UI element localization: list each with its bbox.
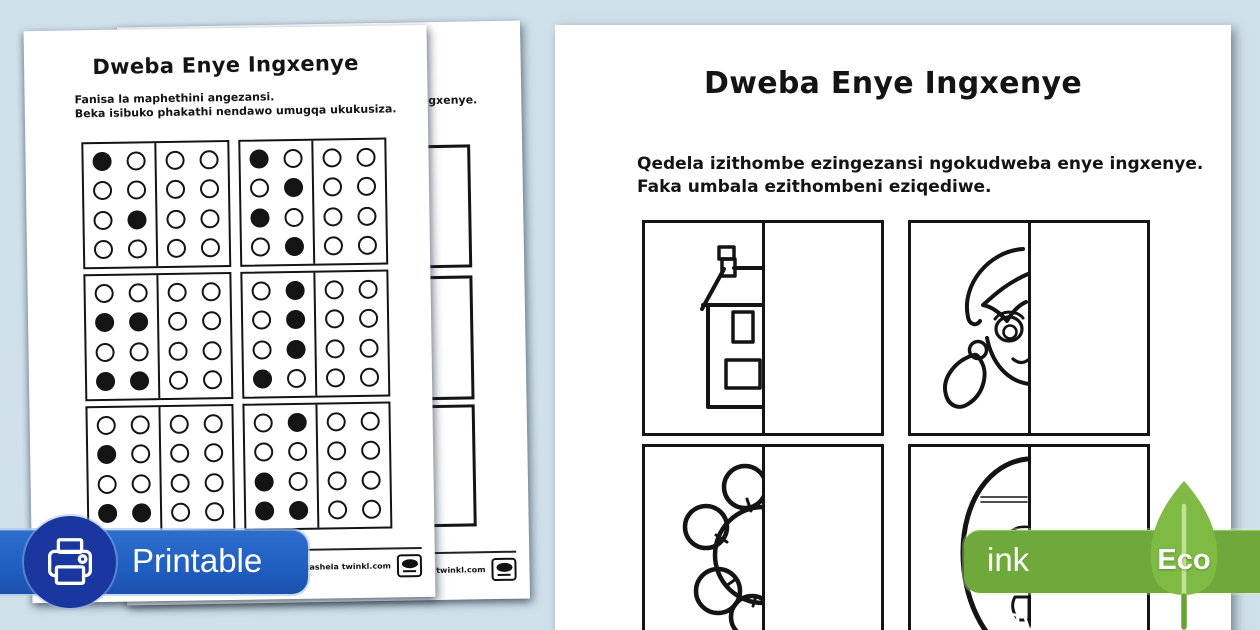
empty-dot	[199, 150, 218, 169]
empty-dot	[361, 441, 380, 460]
pattern-grid	[240, 269, 390, 398]
empty-dot	[168, 312, 187, 331]
filled-dot	[129, 313, 148, 332]
mirror-line	[762, 223, 765, 433]
empty-dot	[93, 181, 112, 200]
empty-dot	[360, 368, 379, 387]
printer-icon-circle	[24, 516, 116, 608]
empty-dot	[359, 309, 378, 328]
empty-dot	[128, 283, 147, 302]
empty-dot	[169, 341, 188, 360]
empty-dot	[171, 503, 190, 522]
empty-dot	[327, 412, 346, 431]
filled-dot	[93, 152, 112, 171]
filled-dot	[285, 237, 304, 256]
filled-dot	[286, 310, 305, 329]
empty-dot	[251, 237, 270, 256]
printable-badge-label: Printable	[132, 530, 262, 594]
pattern-grid-area	[81, 138, 392, 534]
empty-dot	[129, 342, 148, 361]
pattern-grid	[242, 401, 392, 530]
empty-dot	[170, 444, 189, 463]
pattern-grid-right-half	[313, 272, 388, 396]
filled-dot	[285, 281, 304, 300]
pattern-grid-left-half	[244, 405, 317, 529]
empty-dot	[202, 341, 221, 360]
empty-dot	[204, 443, 223, 462]
girl-half-picture	[908, 220, 1150, 436]
empty-dot	[253, 340, 272, 359]
ink-saving-badge-label: ink saving	[987, 530, 1082, 593]
filled-dot	[130, 371, 149, 390]
filled-dot	[255, 472, 274, 491]
eco-badge-label: Eco	[1144, 544, 1224, 577]
empty-dot	[326, 339, 345, 358]
empty-dot	[327, 442, 346, 461]
empty-dot	[288, 442, 307, 461]
empty-dot	[96, 342, 115, 361]
dot-pattern-worksheet-page: Dweba Enye Ingxenye Fanisa la maphethini…	[24, 25, 436, 603]
empty-dot	[126, 151, 145, 170]
filled-dot	[132, 503, 151, 522]
empty-dot	[201, 282, 220, 301]
empty-dot	[357, 206, 376, 225]
empty-dot	[203, 414, 222, 433]
mirror-line	[1028, 223, 1031, 433]
empty-dot	[166, 180, 185, 199]
filled-dot	[250, 149, 269, 168]
empty-dot	[201, 238, 220, 257]
empty-dot	[324, 207, 343, 226]
empty-dot	[94, 240, 113, 259]
twinkl-logo-stamp	[491, 558, 516, 581]
filled-dot	[287, 413, 306, 432]
pattern-grid	[238, 138, 388, 267]
empty-dot	[203, 370, 222, 389]
mirror-line	[762, 447, 765, 630]
empty-dot	[202, 312, 221, 331]
empty-dot	[167, 239, 186, 258]
pattern-grid-right-half	[156, 274, 231, 398]
empty-dot	[326, 368, 345, 387]
empty-dot	[359, 338, 378, 357]
worksheet-instructions: Fanisa la maphethini angezansi. Beka isi…	[75, 88, 397, 121]
pattern-grid-left-half	[240, 141, 313, 265]
empty-dot	[325, 280, 344, 299]
filled-dot	[127, 210, 146, 229]
empty-dot	[361, 470, 380, 489]
empty-dot	[252, 281, 271, 300]
empty-dot	[283, 149, 302, 168]
pattern-grid	[83, 272, 233, 401]
empty-dot	[97, 416, 116, 435]
empty-dot	[166, 151, 185, 170]
empty-dot	[250, 179, 269, 198]
filled-dot	[97, 445, 116, 464]
empty-dot	[167, 209, 186, 228]
empty-dot	[288, 471, 307, 490]
filled-dot	[96, 372, 115, 391]
empty-dot	[357, 177, 376, 196]
filled-dot	[289, 501, 308, 520]
worksheet-instructions: Qedela izithombe ezingezansi ngokudweba …	[637, 153, 1203, 199]
empty-dot	[169, 371, 188, 390]
empty-dot	[204, 473, 223, 492]
house-half-picture	[642, 220, 884, 436]
empty-dot	[130, 415, 149, 434]
website-text: vakashela twinkl.com	[293, 562, 391, 572]
empty-dot	[358, 236, 377, 255]
empty-dot	[323, 148, 342, 167]
filled-dot	[98, 504, 117, 523]
printer-icon	[39, 531, 101, 593]
empty-dot	[95, 284, 114, 303]
filled-dot	[251, 208, 270, 227]
empty-dot	[254, 413, 273, 432]
pattern-grid-left-half	[83, 143, 156, 267]
empty-dot	[168, 283, 187, 302]
empty-dot	[200, 209, 219, 228]
filled-dot	[253, 369, 272, 388]
empty-dot	[127, 181, 146, 200]
back-page-instruction-fragment: gxenye.	[428, 93, 477, 107]
empty-dot	[131, 474, 150, 493]
pattern-grid-right-half	[158, 406, 233, 530]
empty-dot	[358, 280, 377, 299]
worksheet-title: Dweba Enye Ingxenye	[24, 50, 427, 80]
twinkl-logo-stamp	[397, 554, 422, 577]
empty-dot	[205, 502, 224, 521]
pattern-grid-right-half	[311, 140, 386, 264]
filled-dot	[286, 339, 305, 358]
empty-dot	[171, 473, 190, 492]
filled-dot	[255, 501, 274, 520]
empty-dot	[287, 369, 306, 388]
empty-dot	[356, 148, 375, 167]
empty-dot	[252, 311, 271, 330]
empty-dot	[128, 239, 147, 258]
worksheet-title: Dweba Enye Ingxenye	[555, 66, 1231, 101]
pattern-grid-left-half	[87, 407, 160, 531]
instruction-line: Faka umbala ezithombeni eziqediwe.	[637, 176, 1203, 199]
instruction-line: Qedela izithombe ezingezansi ngokudweba …	[637, 153, 1203, 176]
empty-dot	[324, 236, 343, 255]
empty-dot	[360, 412, 379, 431]
empty-dot	[362, 500, 381, 519]
empty-dot	[170, 415, 189, 434]
empty-dot	[323, 178, 342, 197]
pattern-grid-right-half	[315, 404, 390, 528]
empty-dot	[284, 207, 303, 226]
pattern-grid-right-half	[154, 142, 229, 266]
empty-dot	[325, 310, 344, 329]
pattern-grid-left-half	[85, 275, 158, 399]
pattern-grid-left-half	[242, 273, 315, 397]
empty-dot	[328, 500, 347, 519]
pattern-grid	[85, 404, 235, 533]
filled-dot	[284, 178, 303, 197]
pattern-grid	[81, 140, 231, 269]
filled-dot	[95, 313, 114, 332]
empty-dot	[328, 471, 347, 490]
empty-dot	[98, 474, 117, 493]
empty-dot	[200, 180, 219, 199]
empty-dot	[131, 445, 150, 464]
worksheet-preview: gxenye. vakashela twinkl.com Dweba Enye …	[0, 0, 1260, 630]
empty-dot	[94, 210, 113, 229]
flower-half-picture	[642, 444, 884, 630]
empty-dot	[254, 443, 273, 462]
